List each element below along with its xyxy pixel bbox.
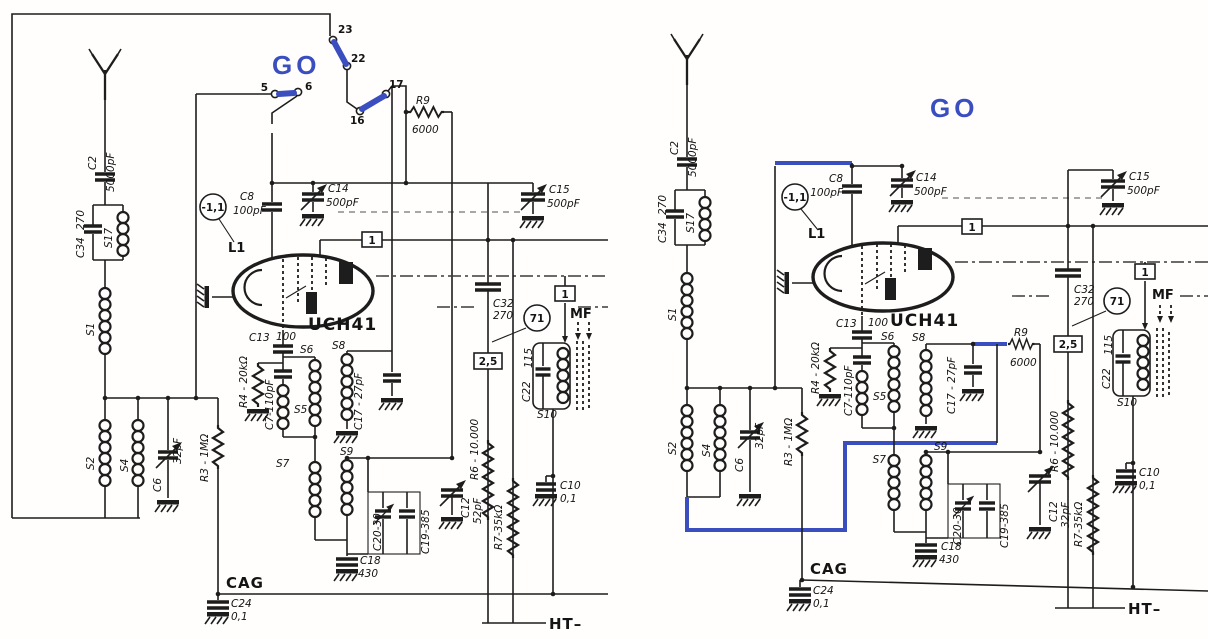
c24-label: C24: [813, 585, 834, 597]
s8-coil: [921, 350, 932, 416]
s4-coil: [133, 420, 144, 486]
r9-label: R9: [416, 95, 430, 107]
c32-capacitor: [1055, 270, 1081, 276]
heater-value: 2,5: [479, 356, 498, 368]
cag-label: CAG: [810, 560, 848, 578]
c8-label: C8: [829, 173, 843, 185]
c34-s17-trap: 270 C34 S17: [657, 190, 711, 273]
c6-label: C6: [152, 478, 164, 492]
c18-label: C18: [360, 555, 381, 567]
s17-coil: [700, 197, 711, 241]
c8-capacitor: [842, 186, 862, 192]
schematic-svg: 23 22 17 16 5 6 GO C2 5000pF: [0, 0, 1208, 639]
avc-ht-rails: CAG C24 0,1 HT–: [205, 574, 608, 633]
c14-label: C14: [916, 172, 937, 184]
c13-label: C13: [836, 318, 857, 330]
s5-label: S5: [873, 391, 887, 403]
c17-capacitor: [383, 375, 401, 381]
s6-label: S6: [881, 331, 895, 343]
c8-value: 100pF: [233, 205, 267, 217]
c34-s17-trap: 270 C34 S17: [75, 205, 129, 288]
c32-label: C32: [493, 298, 514, 310]
c12-section: C12 32pF: [1027, 466, 1072, 539]
c34-value: 270: [657, 195, 669, 215]
triode-plate: [885, 278, 896, 300]
r4-label: R4 - 20kΩ: [238, 356, 250, 408]
r7-label: R7-35kΩ: [1073, 502, 1085, 547]
uch41-tube: L1 UCH41: [777, 226, 959, 331]
s6-label: S6: [300, 344, 314, 356]
c17-label: C17 - 27pF: [353, 372, 365, 430]
heater-value: 2,5: [1059, 339, 1078, 351]
s17-label: S17: [685, 213, 697, 233]
l1-label: L1: [808, 227, 825, 242]
c2-label: C2: [87, 156, 99, 170]
c32-capacitor: [475, 284, 501, 290]
contact-22-label: 22: [351, 53, 366, 65]
r9-resistor: [1008, 339, 1034, 349]
c17-capacitor: [964, 367, 982, 373]
s1-coil: [682, 273, 693, 339]
r4-resistor: [825, 348, 835, 392]
c34-value: 270: [75, 210, 87, 230]
c2-value: 5000pF: [687, 137, 699, 177]
c8-c14-section: C8 100pF C14 500pF: [810, 163, 1102, 246]
c19-capacitor: [399, 511, 415, 517]
ground-symbol: [1027, 527, 1051, 539]
c7-capacitor: [853, 357, 871, 363]
c24-capacitor: [789, 589, 811, 595]
r7-label: R7-35kΩ: [493, 505, 505, 550]
node-71-value: 71: [530, 313, 545, 325]
c15-label: C15: [549, 184, 570, 196]
ht-label: HT–: [549, 615, 582, 633]
ground-symbol: [817, 394, 841, 406]
s2-coil: [100, 420, 111, 486]
s9-label: S9: [934, 441, 948, 453]
contact-6-label: 6: [305, 81, 312, 93]
c22-label: C22: [521, 381, 533, 402]
c18-value: 430: [358, 568, 378, 580]
c10-value: 0,1: [1139, 480, 1156, 492]
s10-label: S10: [1117, 397, 1137, 409]
c32-value: 270: [493, 310, 513, 322]
ground-symbol: [889, 200, 913, 212]
c32-value: 270: [1074, 296, 1094, 308]
antenna-input: C2 5000pF: [87, 49, 121, 205]
c13-value: 100: [868, 317, 888, 329]
s2-label: S2: [85, 456, 97, 470]
ground-symbol: [379, 398, 403, 410]
s7-label: S7: [276, 458, 290, 470]
c13-capacitor: [273, 346, 293, 352]
band-go-label: GO: [930, 93, 978, 123]
ground-symbol: [913, 426, 937, 438]
avc-ht-rails: CAG C24 0,1 HT–: [787, 560, 1208, 618]
s9-label: S9: [340, 446, 354, 458]
s5-coil: [278, 385, 289, 429]
anode-plate: [339, 262, 353, 284]
c7-capacitor: [274, 371, 292, 377]
ground-symbol: [197, 284, 209, 308]
c2-label: C2: [669, 141, 681, 155]
oscillator-section: C13 100 R4 - 20kΩ C7-110pF S5 S6 S8: [238, 330, 403, 462]
cathode: [245, 270, 263, 305]
c13-capacitor: [852, 332, 872, 338]
c12-value: 32pF: [1060, 501, 1072, 528]
right-schematic: GO C2 5000pF 270 C34 S17: [657, 34, 1208, 618]
ground-symbol: [960, 389, 984, 401]
s4-label: S4: [119, 459, 131, 472]
s1-label: S1: [667, 308, 679, 321]
s5-label: S5: [294, 404, 308, 416]
s17-label: S17: [103, 228, 115, 248]
c15-value: 500pF: [547, 198, 581, 210]
test-point-1: 1: [968, 222, 975, 234]
c15-label: C15: [1129, 171, 1150, 183]
c20-label: C20-30: [952, 507, 964, 545]
aerial-coils: S1 S2 S4 C6 32pF: [85, 288, 218, 518]
s6-coil: [310, 360, 321, 426]
c19-capacitor: [979, 503, 995, 509]
cathode: [825, 256, 843, 291]
bus-lines: 1: [898, 219, 1208, 296]
test-point-1b: 1: [561, 289, 568, 301]
c17-label: C17 - 27pF: [946, 356, 958, 414]
s10-coil: [1138, 335, 1149, 390]
blue-rewire-overlay: [687, 163, 1007, 530]
c15-arrow-icon: [1101, 171, 1127, 197]
antenna-icon: [671, 34, 703, 85]
ground-symbol: [520, 216, 544, 228]
switch-link-23-22: [334, 42, 346, 64]
ground-symbol: [155, 500, 179, 512]
s1-coil: [100, 288, 111, 354]
c10-value: 0,1: [560, 493, 577, 505]
test-point-1: 1: [368, 235, 375, 247]
c22-capacitor: [536, 369, 551, 375]
c6-label: C6: [734, 458, 746, 472]
ht-label: HT–: [1128, 600, 1161, 618]
c32-label: C32: [1074, 284, 1095, 296]
c14-label: C14: [328, 183, 349, 195]
antenna-input: C2 5000pF: [669, 34, 703, 190]
ground-symbol: [334, 569, 358, 581]
c10-label: C10: [560, 480, 581, 492]
s1-label: S1: [85, 323, 97, 336]
c22-label: C22: [1101, 368, 1113, 389]
s7-coil: [310, 462, 321, 517]
contact-5-label: 5: [261, 82, 268, 94]
s8-label: S8: [332, 340, 346, 352]
c19-label: C19-385: [999, 503, 1011, 548]
triode-plate: [306, 292, 317, 314]
uch41-tube: L1 UCH41: [197, 240, 377, 335]
ground-symbol: [737, 494, 761, 506]
r9-value: 6000: [412, 124, 439, 136]
c12-label: C12: [1048, 501, 1060, 522]
waveband-switch: 23 22 17 16 5 6 GO: [196, 24, 406, 398]
s6-coil: [889, 346, 900, 412]
tube-type-label: UCH41: [308, 315, 377, 335]
c14-value: 500pF: [326, 197, 360, 209]
c20-label: C20-30: [372, 513, 384, 551]
s4-label: S4: [701, 444, 713, 457]
r9-label: R9: [1014, 327, 1028, 339]
s9-coil: [342, 460, 353, 515]
r6-label: R6 - 10.000: [1049, 411, 1061, 472]
r3-resistor: R3 - 1MΩ: [783, 388, 807, 580]
c12-label: C12: [460, 497, 472, 518]
c14-arrow-icon: [301, 184, 327, 210]
padder-section: S7 S9 C20-30 C19-385 C18 430: [873, 441, 1043, 567]
c24-value: 0,1: [231, 611, 248, 623]
oscillator-section: C13 100 R4 - 20kΩ C7-110pF S5 S6 S8: [810, 316, 1040, 455]
r4-resistor: [253, 363, 263, 407]
contact-17-label: 17: [389, 79, 404, 91]
s7-label: S7: [873, 454, 887, 466]
c14-arrow-icon: [890, 170, 916, 196]
r3-label: R3 - 1MΩ: [199, 434, 211, 482]
ground-symbol: [777, 270, 789, 294]
s2-label: S2: [667, 441, 679, 455]
tube-type-label: UCH41: [890, 311, 959, 331]
ground-symbol: [205, 612, 229, 624]
c6-value: 32pF: [172, 437, 184, 464]
ground-symbol: [913, 555, 937, 567]
c18-capacitor: [915, 545, 937, 551]
s5-coil: [857, 371, 868, 415]
padder-section: S7 S9 C20-30 C19-385 C18 430: [276, 446, 454, 581]
ground-symbol: [1100, 203, 1124, 215]
left-schematic: 23 22 17 16 5 6 GO C2 5000pF: [12, 14, 608, 633]
mf-label: MF: [570, 307, 592, 322]
s10-coil: [558, 348, 569, 403]
r3-resistor: R3 - 1MΩ: [199, 398, 223, 594]
ground-symbol: [300, 214, 324, 226]
r6-label: R6 - 10.000: [469, 419, 481, 480]
c7-label: C7-110pF: [264, 378, 276, 430]
bias-value: -1,1: [784, 192, 807, 204]
s2-coil: [682, 405, 693, 471]
cag-label: CAG: [226, 574, 264, 592]
radio-schematic-scan: 23 22 17 16 5 6 GO C2 5000pF: [0, 0, 1208, 639]
node-71-value: 71: [1110, 296, 1125, 308]
s9-coil: [921, 455, 932, 510]
c22-value: 115: [523, 348, 535, 368]
s17-coil: [118, 212, 129, 256]
c24-capacitor: [207, 602, 229, 608]
c10-label: C10: [1139, 467, 1160, 479]
l1-label: L1: [228, 241, 245, 256]
c22-value: 115: [1103, 335, 1115, 355]
band-go-label: GO: [272, 50, 320, 80]
c6-value: 32pF: [754, 422, 766, 449]
c18-value: 430: [939, 554, 959, 566]
r3-label: R3 - 1MΩ: [783, 418, 795, 466]
switch-link-16-17: [362, 96, 384, 109]
r9-value: 6000: [1010, 357, 1037, 369]
anode-plate: [918, 248, 932, 270]
mf-label: MF: [1152, 288, 1174, 303]
c19-label: C19-385: [420, 509, 432, 554]
c8-value: 100pF: [810, 187, 844, 199]
antenna-icon: [89, 49, 121, 100]
s8-label: S8: [912, 332, 926, 344]
c34-label: C34: [75, 237, 87, 258]
ground-symbol: [334, 431, 358, 443]
contact-23-label: 23: [338, 24, 353, 36]
c7-label: C7-110pF: [843, 364, 855, 416]
c18-capacitor: [336, 559, 358, 565]
s10-label: S10: [537, 409, 557, 421]
r4-label: R4 - 20kΩ: [810, 342, 822, 394]
s7-coil: [889, 455, 900, 510]
c8-label: C8: [240, 191, 254, 203]
c15-arrow-icon: [521, 184, 547, 210]
c14-value: 500pF: [914, 186, 948, 198]
switch-link-5-6: [279, 93, 294, 94]
test-point-1b: 1: [1141, 267, 1148, 279]
c15-value: 500pF: [1127, 185, 1161, 197]
c34-label: C34: [657, 222, 669, 243]
contact-16-label: 16: [350, 115, 365, 127]
c24-label: C24: [231, 598, 252, 610]
c13-label: C13: [249, 332, 270, 344]
c18-label: C18: [941, 541, 962, 553]
ground-symbol: [787, 599, 811, 611]
c13-value: 100: [276, 331, 296, 343]
s8-coil: [342, 354, 353, 420]
bias-value: -1,1: [202, 202, 225, 214]
c12-section: C12 52pF: [439, 480, 484, 529]
s4-coil: [715, 405, 726, 471]
bias-annotation: -1,1: [200, 194, 234, 242]
c24-value: 0,1: [813, 598, 830, 610]
c2-value: 5000pF: [105, 152, 117, 192]
c22-capacitor: [1116, 356, 1131, 362]
